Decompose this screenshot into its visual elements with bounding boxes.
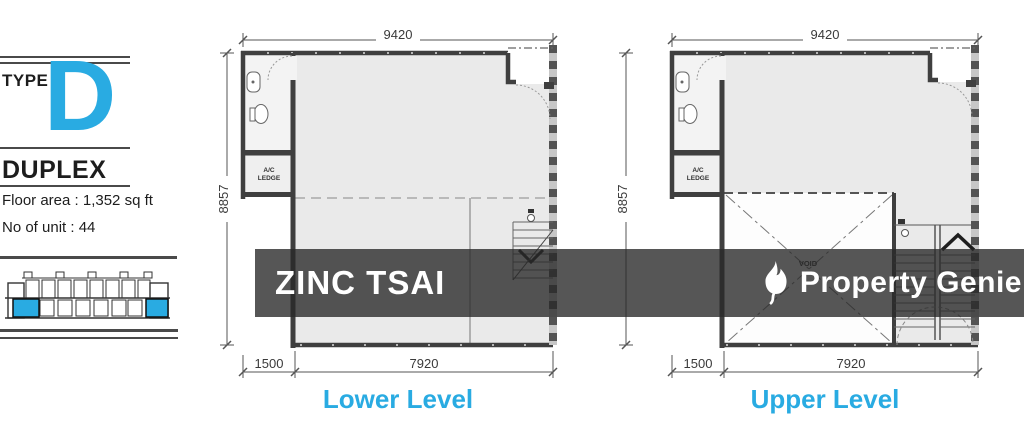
highlighted-unit-left bbox=[13, 299, 39, 317]
building-section-diagram bbox=[0, 255, 185, 345]
entry-notch bbox=[506, 44, 553, 84]
bathroom-floor bbox=[672, 53, 722, 150]
flame-icon bbox=[761, 261, 791, 305]
ac-ledge-floor bbox=[672, 156, 722, 192]
bathroom-door-gap bbox=[719, 56, 726, 80]
divider-under-duplex bbox=[0, 185, 130, 187]
dim-top-value: 9420 bbox=[384, 27, 413, 42]
divider-under-type bbox=[0, 147, 130, 149]
brand-lockup: Property Genie bbox=[761, 261, 1022, 305]
divider-bottom-1 bbox=[0, 329, 178, 332]
dimension-top: 9420 bbox=[239, 26, 557, 47]
highlighted-unit-right bbox=[146, 299, 168, 317]
dimension-top: 9420 bbox=[668, 26, 982, 47]
dim-left-value: 8857 bbox=[216, 185, 231, 214]
divider-bottom-2 bbox=[0, 337, 178, 339]
dimension-left: 8857 bbox=[216, 49, 234, 349]
dimension-bottom: 1500 7920 bbox=[668, 351, 982, 378]
bathroom-floor bbox=[243, 53, 293, 150]
svg-text:LEDGE: LEDGE bbox=[687, 175, 710, 182]
dimension-bottom: 1500 7920 bbox=[239, 351, 557, 378]
dim-bottom-offset-value: 1500 bbox=[684, 356, 713, 371]
ac-ledge-floor bbox=[243, 156, 293, 192]
entry-notch bbox=[928, 44, 978, 82]
type-label: TYPE bbox=[2, 71, 48, 91]
lower-level-plan: A/C LEDGE 9420 8857 bbox=[205, 15, 570, 420]
toilet bbox=[683, 105, 697, 124]
dim-left-value: 8857 bbox=[615, 185, 630, 214]
unit-count-text: No of unit : 44 bbox=[2, 219, 95, 236]
svg-text:LEDGE: LEDGE bbox=[258, 175, 281, 182]
dim-bottom-offset-value: 1500 bbox=[255, 356, 284, 371]
info-panel: TYPE D DUPLEX Floor area : 1,352 sq ft N… bbox=[0, 0, 200, 426]
brand-name: Property Genie bbox=[800, 266, 1022, 300]
floor-area-text: Floor area : 1,352 sq ft bbox=[2, 192, 153, 209]
bathroom-door-gap bbox=[290, 56, 297, 80]
toilet bbox=[254, 105, 268, 124]
upper-level-label: Upper Level bbox=[751, 384, 900, 414]
svg-text:A/C: A/C bbox=[692, 167, 704, 174]
upper-level-plan: VOID A/C LEDGE bbox=[595, 15, 1024, 420]
lower-level-label: Lower Level bbox=[323, 384, 473, 414]
dim-bottom-main-value: 7920 bbox=[837, 356, 866, 371]
dim-bottom-main-value: 7920 bbox=[410, 356, 439, 371]
listing-name-watermark: ZINC TSAI bbox=[275, 264, 445, 302]
dim-top-value: 9420 bbox=[811, 27, 840, 42]
unit-type-title: DUPLEX bbox=[2, 156, 106, 185]
watermark-band: ZINC TSAI Property Genie bbox=[255, 249, 1024, 317]
type-letter: D bbox=[44, 50, 116, 142]
svg-text:A/C: A/C bbox=[263, 167, 275, 174]
